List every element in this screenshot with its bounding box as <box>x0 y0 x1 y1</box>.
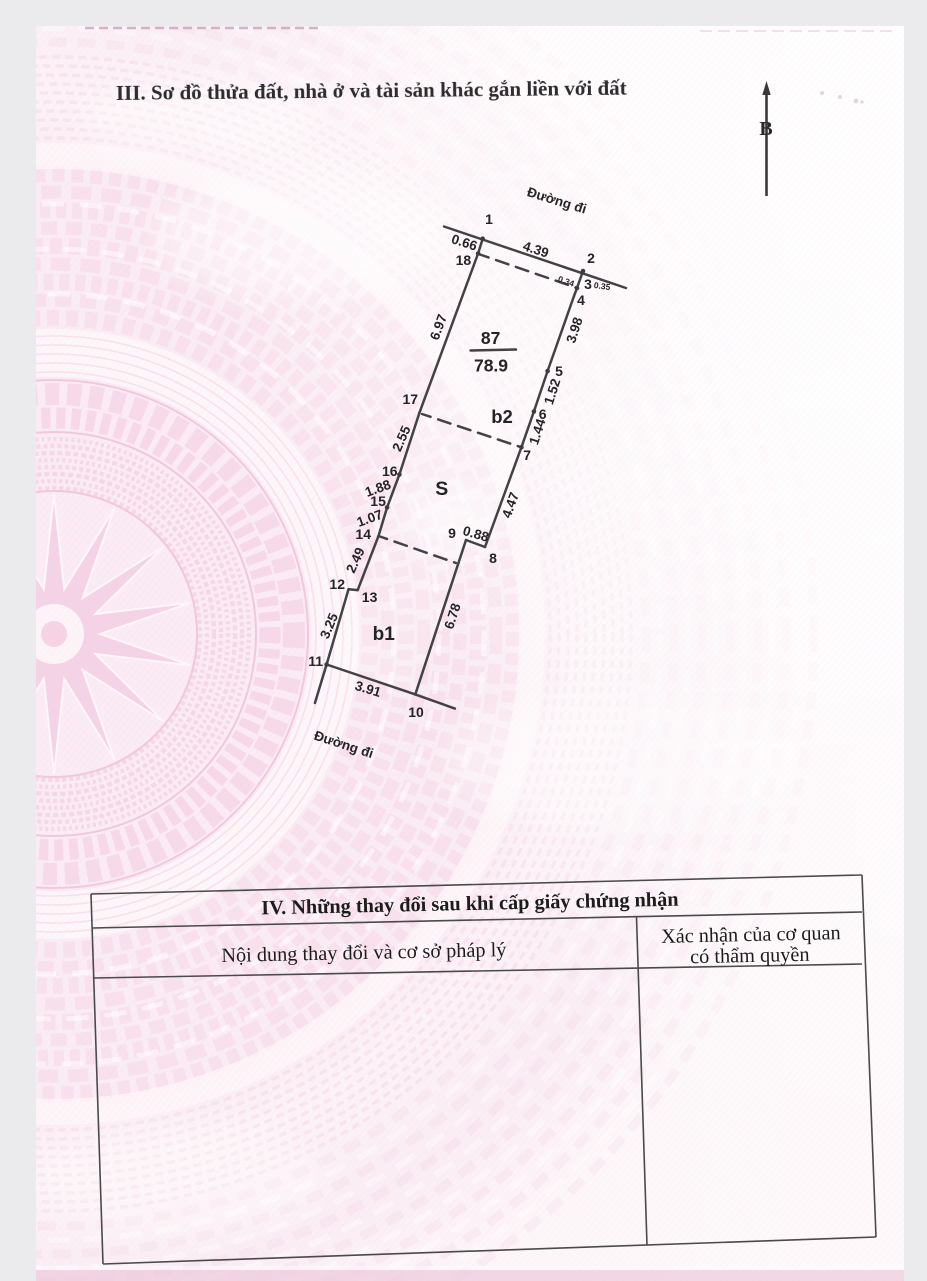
svg-text:87: 87 <box>481 328 500 348</box>
svg-text:12: 12 <box>329 576 345 592</box>
svg-text:7: 7 <box>523 447 531 463</box>
svg-text:1: 1 <box>485 211 493 227</box>
svg-text:4: 4 <box>577 292 585 308</box>
svg-text:16: 16 <box>382 463 398 479</box>
svg-text:78.9: 78.9 <box>474 356 508 376</box>
svg-text:9: 9 <box>448 525 456 541</box>
svg-text:B: B <box>759 118 772 140</box>
svg-text:2: 2 <box>587 250 595 266</box>
svg-text:b2: b2 <box>491 406 513 427</box>
svg-text:13: 13 <box>362 589 378 605</box>
svg-text:18: 18 <box>456 252 472 268</box>
svg-text:b1: b1 <box>373 624 396 645</box>
svg-text:3: 3 <box>584 276 592 292</box>
svg-text:5: 5 <box>555 363 563 379</box>
svg-text:10: 10 <box>408 704 424 720</box>
svg-text:17: 17 <box>403 391 419 407</box>
svg-text:11: 11 <box>308 653 323 669</box>
svg-text:S: S <box>435 478 448 500</box>
svg-text:có thẩm quyền: có thẩm quyền <box>690 944 810 968</box>
svg-text:8: 8 <box>489 550 497 566</box>
